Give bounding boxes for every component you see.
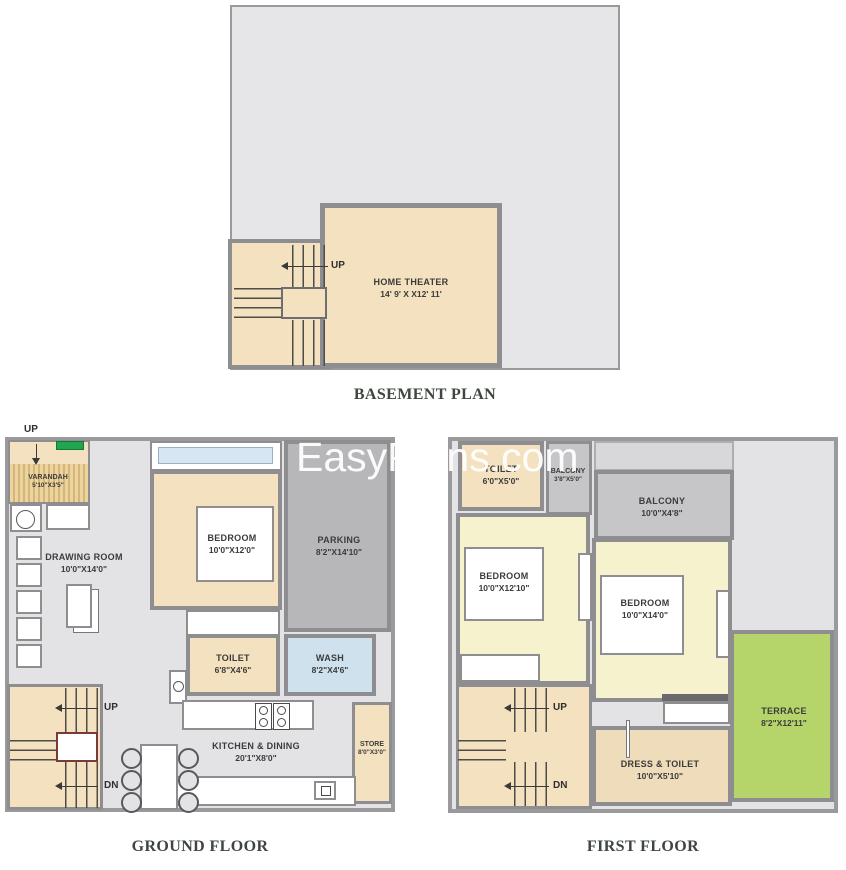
basement-stairs-mid-landing-steps <box>234 280 284 318</box>
store-label: STORE 8'0"X3'0" <box>350 740 394 758</box>
kitchen-counter-top <box>182 700 314 730</box>
parking-label: PARKING 8'2"X14'10" <box>289 535 389 558</box>
planter-box <box>56 441 84 450</box>
sofa-seat <box>16 590 42 614</box>
sofa-seat <box>16 617 42 641</box>
ground-up-label: UP <box>104 702 118 713</box>
home-theater-label: HOME THEATER 14' 9' X X12' 11' <box>341 277 481 300</box>
wc-fixture <box>169 670 187 704</box>
door-leaf <box>626 720 630 758</box>
first-dn-label: DN <box>553 780 567 791</box>
first-up-label: UP <box>553 702 567 713</box>
ground-floor-title: GROUND FLOOR <box>80 838 320 856</box>
sofa-seat <box>16 644 42 668</box>
wardrobe-bar <box>662 694 728 701</box>
dining-chair <box>121 748 142 769</box>
window-bedroom-left <box>578 553 592 621</box>
basement-up-arrow-icon <box>284 266 328 267</box>
dressing-counter <box>663 702 730 724</box>
ground-dn-arrow-icon <box>58 786 98 787</box>
ground-stairs-landing <box>56 732 98 762</box>
balcony-large-label: BALCONY 10'0"X4'8" <box>602 496 722 519</box>
kitchen-sink <box>314 781 336 800</box>
stove-burner <box>255 703 272 730</box>
first-floor-title: FIRST FLOOR <box>523 838 763 856</box>
bedroom-left-label: BEDROOM 10'0"X12'10" <box>454 571 554 594</box>
stove-burner <box>273 703 290 730</box>
dining-chair <box>121 792 142 813</box>
wardrobe-bedroom-left <box>460 654 540 682</box>
terrace-label: TERRACE 8'2"X12'11" <box>734 706 834 729</box>
dining-chair <box>121 770 142 791</box>
wash-label: WASH 8'2"X4'6" <box>285 653 375 676</box>
wash-basin-counter <box>10 504 42 532</box>
counter-unit <box>46 504 90 530</box>
dress-toilet-label: DRESS & TOILET 10'0"X5'10" <box>590 759 730 782</box>
ground-stairs-lower-flight <box>56 762 98 808</box>
basement-plan-title: BASEMENT PLAN <box>280 386 570 404</box>
toilet-ground-label: TOILET 6'8"X4'6" <box>188 653 278 676</box>
basement-stairs-landing <box>281 287 327 319</box>
watermark: EasyPlans.com <box>296 434 579 481</box>
bedroom-right-label: BEDROOM 10'0"X14'0" <box>595 598 695 621</box>
ground-floor-plan: UP VARANDAH 5'10"X3'5" DRAWING ROOM 10'0… <box>0 420 440 870</box>
first-floor-plan: TOILET 6'0"X5'0" BALCONY 3'8"X5'0" BALCO… <box>440 420 846 870</box>
basement-plan: UP HOME THEATER 14' 9' X X12' 11' BASEME… <box>0 0 846 420</box>
kitchen-dining-label: KITCHEN & DINING 20'1"X8'0" <box>181 741 331 764</box>
roof-strip <box>594 441 734 471</box>
ground-dn-label: DN <box>104 780 118 791</box>
ground-stairs-upper-flight <box>56 688 98 732</box>
ground-entry-up-label: UP <box>24 424 38 435</box>
center-table <box>66 584 92 628</box>
dining-table <box>140 744 178 810</box>
drawing-room-label: DRAWING ROOM 10'0"X14'0" <box>24 552 144 575</box>
basement-stairs-lower-flight <box>283 320 325 366</box>
window-bedroom-right <box>716 590 730 658</box>
basement-up-label: UP <box>331 260 345 271</box>
floor-plans-sheet: UP HOME THEATER 14' 9' X X12' 11' BASEME… <box>0 0 846 870</box>
first-stairs-upper-flight <box>505 688 549 732</box>
bedroom-window-glass <box>158 447 273 464</box>
varandah-label: VARANDAH 5'10"X3'5" <box>9 473 87 491</box>
bedroom-window-frame <box>150 441 282 471</box>
dining-chair <box>178 770 199 791</box>
ground-up-arrow-icon <box>58 708 98 709</box>
first-stairs-lower-flight <box>505 762 549 806</box>
first-up-arrow-icon <box>507 708 549 709</box>
ground-stairs-mid-steps <box>10 732 56 762</box>
first-stairs-mid-steps <box>458 732 506 762</box>
entry-steps-arrow-icon <box>36 444 37 462</box>
first-dn-arrow-icon <box>507 786 549 787</box>
dining-chair <box>178 792 199 813</box>
wardrobe-ground <box>186 610 280 636</box>
bedroom-ground-label: BEDROOM 10'0"X12'0" <box>172 533 292 556</box>
